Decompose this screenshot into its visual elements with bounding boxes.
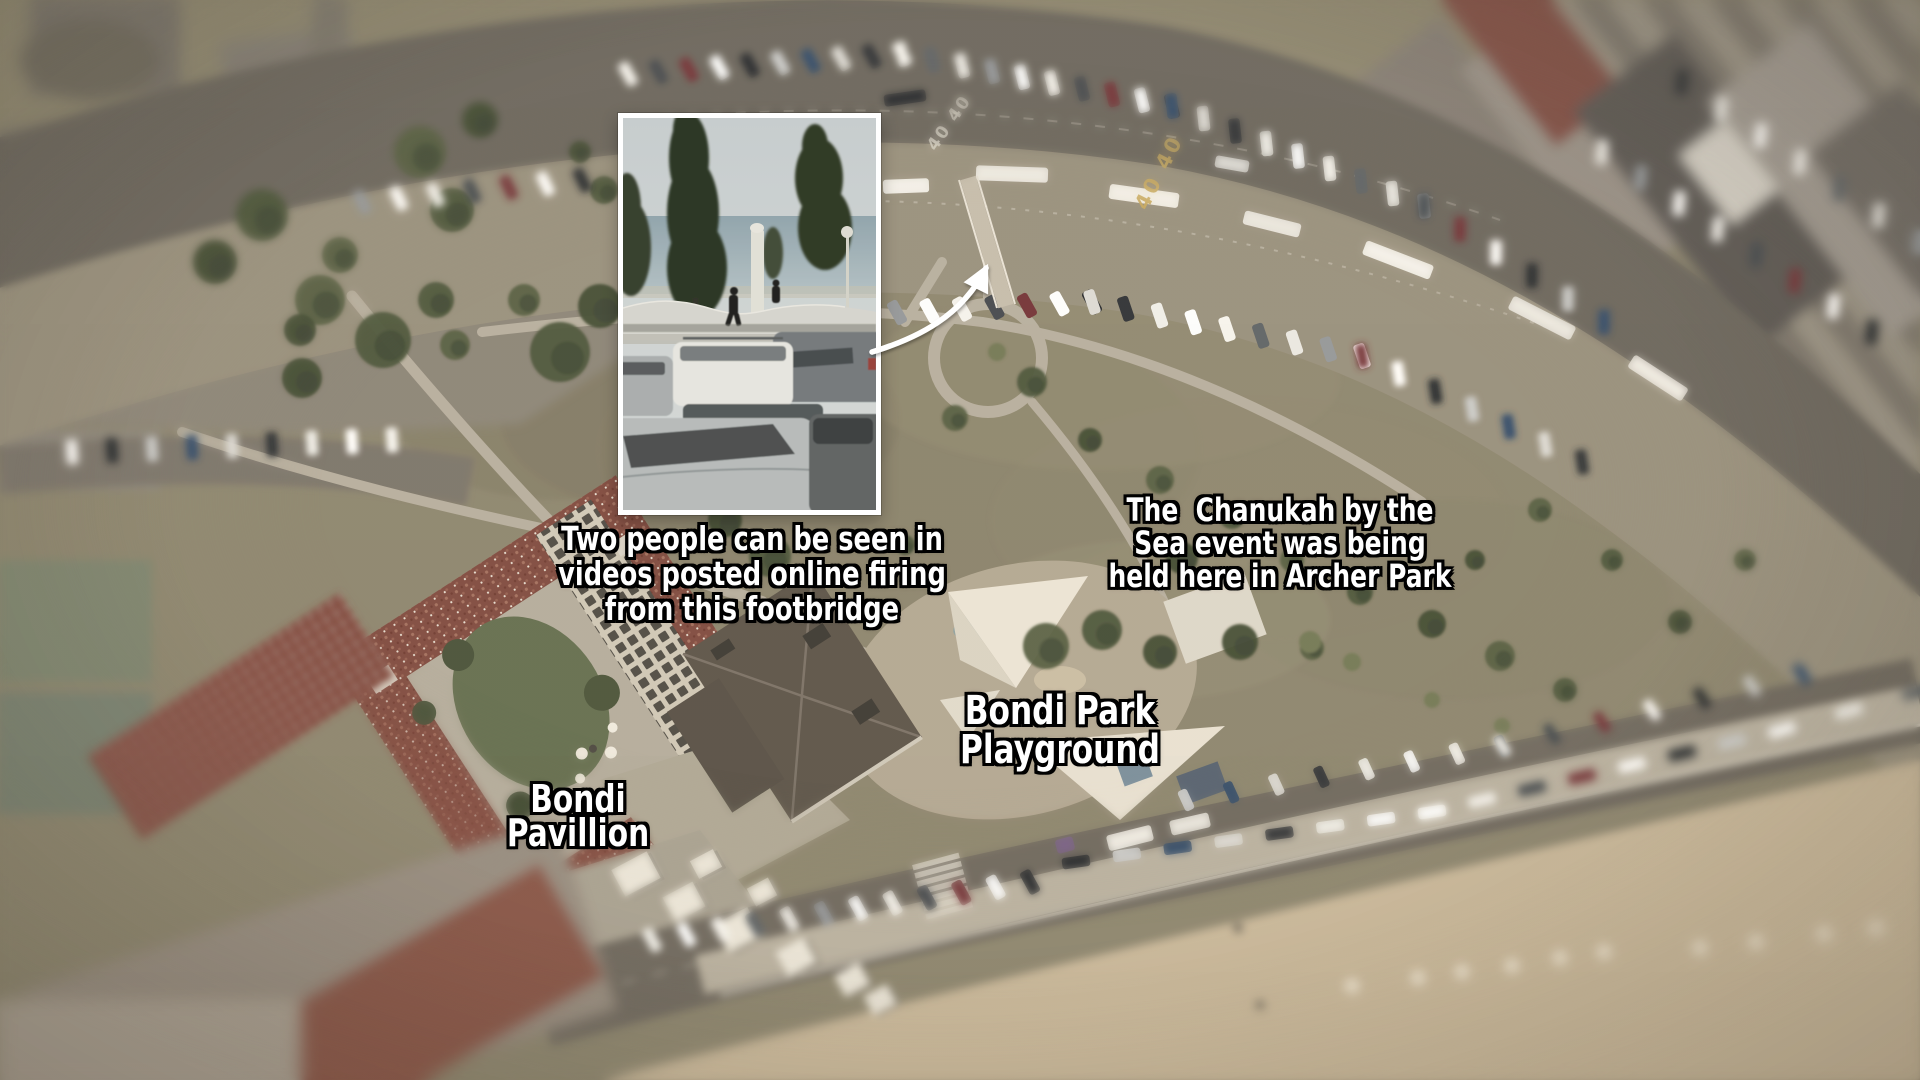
news-graphic: 40 40 40 40: [0, 0, 1920, 1080]
footbridge-video-still: [623, 118, 876, 510]
chanukah-annotation: The Chanukah by the Sea event was being …: [1062, 494, 1499, 593]
footbridge-annotation: Two people can be seen in videos posted …: [534, 521, 971, 626]
video-still-inset: [618, 113, 881, 515]
playground-label: Bondi Park Playground: [904, 692, 1216, 770]
pavilion-label: Bondi Pavillion: [461, 782, 695, 850]
